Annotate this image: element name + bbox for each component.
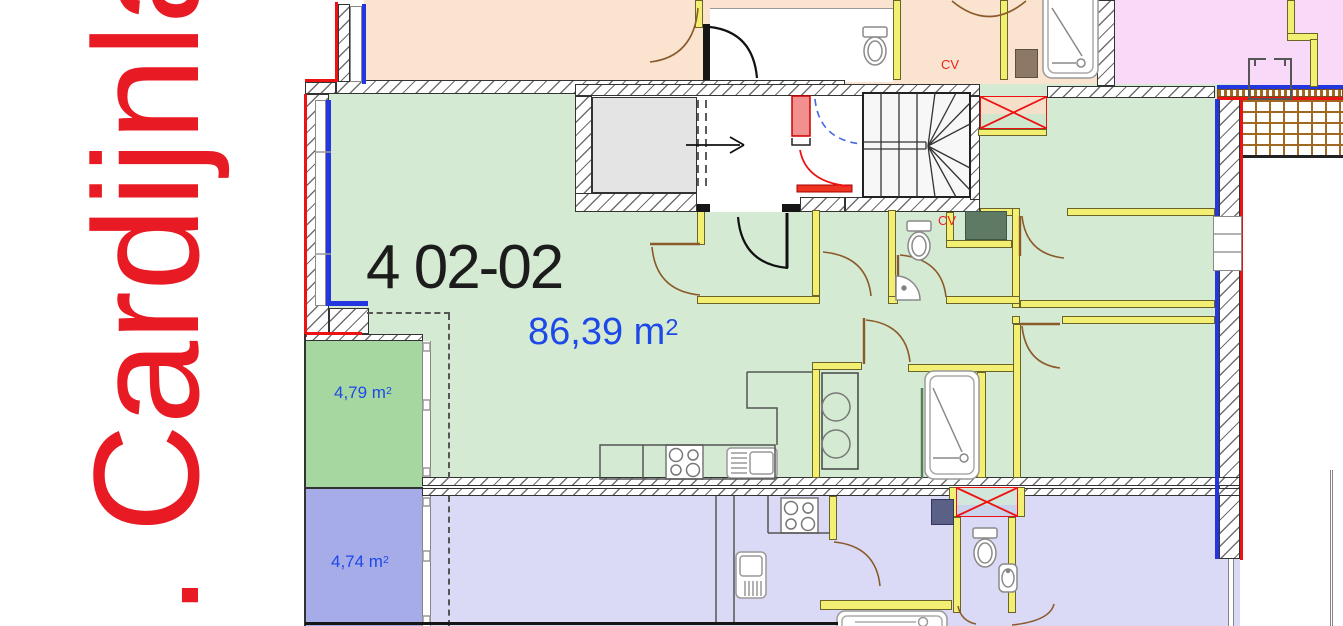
yw-wc-bottom (946, 296, 1020, 304)
yw-purple-shaft-r (1017, 487, 1025, 517)
red-line-balcony-top (304, 332, 362, 335)
window-left-v (326, 100, 331, 306)
black-stub-hall-r (782, 204, 800, 212)
cv-label-green: CV (938, 214, 956, 227)
yw-bedroom-left-v (1013, 324, 1021, 478)
window-frame-topleft (350, 6, 362, 82)
unit-id-label: 4 02-02 (366, 237, 562, 299)
yw-peach-3 (695, 0, 703, 28)
yw-hall-bottom (697, 296, 820, 304)
peach-hall-floor (710, 8, 893, 82)
red-line-terrace (1217, 97, 1343, 100)
window-left-foot (326, 301, 368, 306)
glass-balcony-green (422, 341, 431, 477)
plan-bottom-edge (305, 622, 838, 625)
terrace-edge-line (1330, 470, 1333, 626)
wall-staircore-top (575, 84, 980, 96)
cv-unit-purple (931, 499, 954, 525)
yw-hall-top-stub (697, 210, 705, 245)
balcony-divider (304, 487, 423, 489)
balcony-left-edge (304, 334, 306, 626)
red-line-topleft-h (305, 79, 338, 82)
yw-cv-niche-h (946, 240, 1012, 248)
yw-purple-kitchen-v (829, 496, 837, 540)
window-right-frame (1213, 216, 1242, 271)
yw-bath-top-left (812, 362, 862, 370)
yw-bedroom-div-stub (1012, 316, 1020, 324)
wall-peach-pink-column (1097, 0, 1115, 86)
wall-topleft-column (338, 4, 350, 82)
yw-bedroom-div-1 (1020, 300, 1215, 308)
elevator-cab (592, 97, 697, 193)
yw-corridor-v (1012, 208, 1020, 308)
cv-unit-green (965, 211, 1007, 240)
wall-top-right (1047, 86, 1215, 98)
wall-hall-bottom-right (800, 197, 845, 212)
yw-hall-left-v (812, 210, 820, 296)
shaft-green (980, 96, 1047, 129)
red-line-topleft-v (335, 2, 338, 80)
dashed-overhang-h (367, 312, 450, 314)
yw-bedroom-div-2 (1062, 316, 1215, 324)
yw-purple-bath-h (820, 600, 952, 610)
yw-corridor-top-right (1067, 208, 1215, 216)
yw-wc-left-v (888, 210, 896, 302)
red-line-right (1240, 99, 1243, 560)
wall-left-jog (329, 308, 369, 334)
red-line-left (304, 94, 307, 337)
yw-shower-right-v (977, 372, 986, 478)
shaft-purple (956, 487, 1018, 517)
street-name-label: . Cardijnlaan (60, 0, 233, 616)
apartment-pink-fill (1113, 0, 1343, 86)
window-right-v (1215, 99, 1219, 559)
terrace-paving (1243, 99, 1343, 158)
yw-bath-top-right (908, 364, 1020, 372)
black-wall-peach-door (703, 24, 710, 80)
unit-area-label: 86,39 m2 (528, 313, 678, 351)
dashed-overhang-v2 (448, 496, 450, 626)
yw-wc-bottom-stub (888, 296, 898, 304)
yw-purple-wc-right (1008, 517, 1016, 613)
yw-pink-zig-1 (1287, 0, 1295, 35)
wall-stairs-right (970, 96, 980, 200)
wall-bottom-strip-2 (422, 488, 1240, 496)
yw-peach-2 (1000, 0, 1008, 80)
glass-balcony-blue (422, 496, 431, 626)
balcony-blue-area-label: 4,74 m2 (331, 553, 389, 570)
cv-unit-peach (1015, 49, 1038, 78)
window-frame-left (315, 100, 326, 306)
wall-stairs-bottom (845, 197, 980, 212)
floorplan-canvas: 4 02-02 86,39 m2 4,79 m2 4,74 m2 CV CV .… (0, 0, 1343, 626)
yw-bath-left-v (812, 362, 820, 478)
yw-below-shaft (978, 129, 1047, 136)
wall-left-corner (305, 82, 336, 94)
window-topleft (362, 4, 366, 84)
yw-purple-wc-left (953, 517, 961, 613)
wall-elevator-bottom (575, 193, 697, 212)
yw-peach-1 (893, 0, 901, 80)
terrace-edge-dots (1217, 89, 1343, 97)
cv-label-peach: CV (941, 58, 959, 71)
yw-pink-zig-3 (1310, 39, 1318, 87)
wall-balcony-top (305, 334, 423, 341)
black-stub-hall-l (697, 204, 710, 212)
balcony-green-fill (304, 337, 423, 488)
wall-bottom-strip-1 (422, 477, 1240, 486)
glass-purple-right (1228, 559, 1234, 626)
balcony-green-area-label: 4,79 m2 (334, 384, 392, 401)
dashed-overhang-v1 (448, 314, 450, 478)
